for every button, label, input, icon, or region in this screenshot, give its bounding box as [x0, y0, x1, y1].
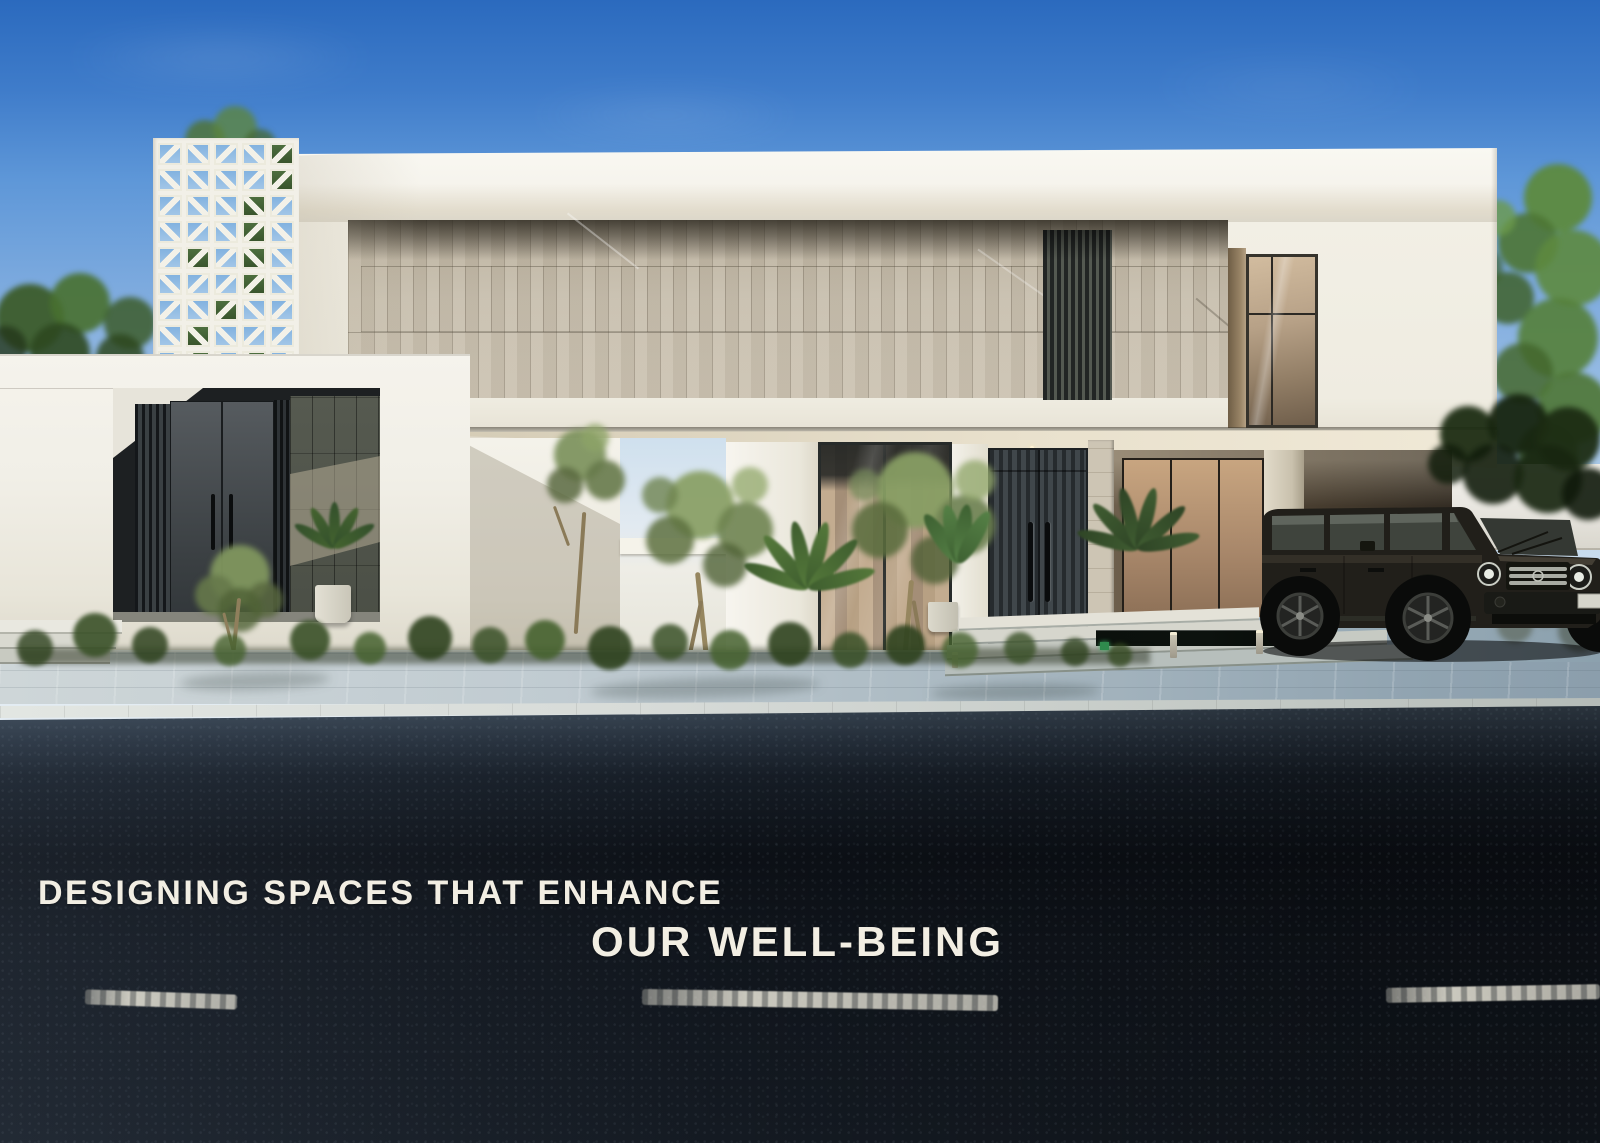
breeze-block-cell: [158, 273, 182, 295]
step-tread: [0, 649, 110, 664]
foliage-blob: [732, 467, 768, 503]
breeze-block-cell: [158, 169, 182, 191]
door-handle: [1368, 568, 1384, 572]
headlight-ring: [1484, 569, 1494, 579]
window-pillar: [1442, 512, 1450, 550]
breeze-block-cell: [158, 247, 182, 269]
foliage-blob: [547, 467, 583, 503]
wheel-hub: [1424, 614, 1432, 622]
breeze-block-screen: [153, 138, 299, 374]
breeze-block-cell: [242, 273, 266, 295]
lane-marking: [642, 989, 998, 1011]
foliage-blob: [581, 424, 609, 452]
breeze-block-cell: [214, 325, 238, 347]
fascia-soffit-shading: [288, 184, 1497, 222]
breeze-block-cell: [158, 325, 182, 347]
breeze-block-cell: [214, 221, 238, 243]
parapet-groove: [0, 388, 120, 389]
breeze-block-cell: [242, 221, 266, 243]
foliage-blob: [646, 516, 694, 564]
breeze-block-cell: [242, 143, 266, 165]
breeze-block-cell: [214, 273, 238, 295]
lower-intake: [1492, 614, 1596, 624]
breeze-block-cell: [186, 299, 210, 321]
breeze-block-cell: [214, 299, 238, 321]
door-handle: [1300, 568, 1316, 572]
breeze-block-cell: [270, 247, 294, 269]
fog-light: [1495, 597, 1505, 607]
breeze-block-cell: [242, 247, 266, 269]
door-handle: [1028, 522, 1033, 602]
plant-annex-pot-plant: [285, 497, 381, 593]
annex-steps: [0, 620, 122, 664]
breeze-block-cell: [270, 169, 294, 191]
breeze-block-cell: [186, 221, 210, 243]
window-pillar: [1324, 513, 1330, 550]
plant-palm-plant: [733, 513, 877, 657]
body-highlight: [1262, 555, 1482, 563]
wall-edge-shading: [1491, 148, 1497, 446]
door-handle: [1045, 522, 1050, 602]
breeze-block-cell: [186, 169, 210, 191]
side-mirror: [1360, 541, 1375, 551]
breeze-block-cell: [242, 195, 266, 217]
cloud-wisp: [1140, 58, 1440, 116]
slat-panel: [135, 404, 170, 622]
foliage-blob: [1535, 230, 1600, 306]
lane-marking: [1386, 984, 1600, 1003]
breeze-block-cell: [158, 299, 182, 321]
architectural-render: DESIGNING SPACES THAT ENHANCE OUR WELL-B…: [0, 0, 1600, 1143]
breeze-block-cell: [186, 247, 210, 269]
step-tread: [0, 620, 122, 634]
breeze-block-cell: [270, 143, 294, 165]
breeze-block-cell: [270, 195, 294, 217]
glass-reflection: [1249, 257, 1315, 425]
breeze-block-cell: [270, 273, 294, 295]
caption-line-2: OUR WELL-BEING: [520, 918, 1004, 966]
bollard-light: [1170, 632, 1177, 658]
breeze-block-cell: [186, 325, 210, 347]
breeze-block-cell: [214, 143, 238, 165]
black-suv-g-wagon: [1248, 498, 1600, 668]
breeze-block-cell: [186, 273, 210, 295]
headlight-ring: [1574, 572, 1584, 582]
cloud-wisp: [520, 88, 810, 142]
breeze-block-cell: [186, 195, 210, 217]
breeze-block-grid: [158, 143, 294, 374]
annex-tree: [185, 535, 295, 635]
foliage-blob: [642, 477, 678, 513]
upper-window: [1246, 254, 1318, 428]
vertical-louver-screen: [1043, 230, 1112, 400]
stone-vein: [567, 213, 639, 270]
breeze-block-cell: [158, 143, 182, 165]
breeze-block-cell: [214, 247, 238, 269]
breeze-block-cell: [270, 325, 294, 347]
caption-line-1: DESIGNING SPACES THAT ENHANCE: [38, 874, 723, 913]
breeze-block-cell: [158, 221, 182, 243]
foliage-blob: [849, 469, 881, 501]
breeze-block-cell: [242, 169, 266, 191]
breeze-block-cell: [242, 325, 266, 347]
breeze-block-cell: [242, 299, 266, 321]
step-tread: [0, 634, 116, 649]
breeze-block-cell: [214, 169, 238, 191]
lane-marking: [85, 989, 237, 1009]
planter-pot: [315, 585, 351, 623]
breeze-block-cell: [186, 143, 210, 165]
green-accent-light: [1100, 642, 1109, 650]
cloud-wisp: [60, 26, 380, 90]
foliage-blob: [955, 460, 995, 500]
bollard-light: [952, 652, 958, 668]
upper-window-reveal: [1228, 248, 1246, 428]
wheel-hub: [1296, 612, 1304, 620]
license-plate: [1578, 594, 1600, 608]
window-pillar: [1384, 512, 1390, 550]
foliage-blob: [585, 460, 625, 500]
plant-porch-palm: [1069, 479, 1201, 611]
breeze-block-cell: [214, 195, 238, 217]
grille-bar: [1509, 574, 1567, 578]
foliage-blob: [1428, 444, 1468, 484]
breeze-block-cell: [270, 299, 294, 321]
breeze-block-cell: [158, 195, 182, 217]
breeze-block-cell: [270, 221, 294, 243]
